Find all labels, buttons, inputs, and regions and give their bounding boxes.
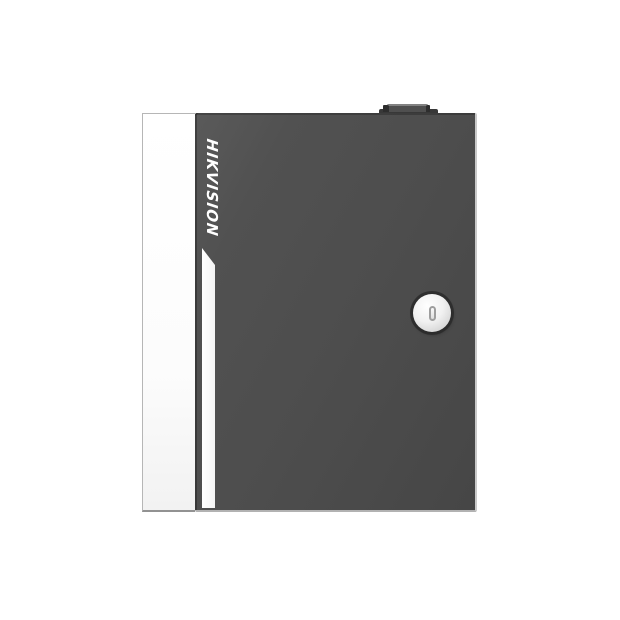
door-accent-stripe [202,248,215,508]
brand-logo-text: HIKVISION [203,138,220,238]
device-enclosure: HIKVISION [142,113,477,512]
cam-lock [413,294,451,332]
enclosure-hinge-panel [142,113,195,512]
door-top-tab [387,104,428,112]
enclosure-door-panel: HIKVISION [195,113,477,512]
product-photo: HIKVISION [0,0,620,620]
keyhole-slot-icon [429,306,436,321]
